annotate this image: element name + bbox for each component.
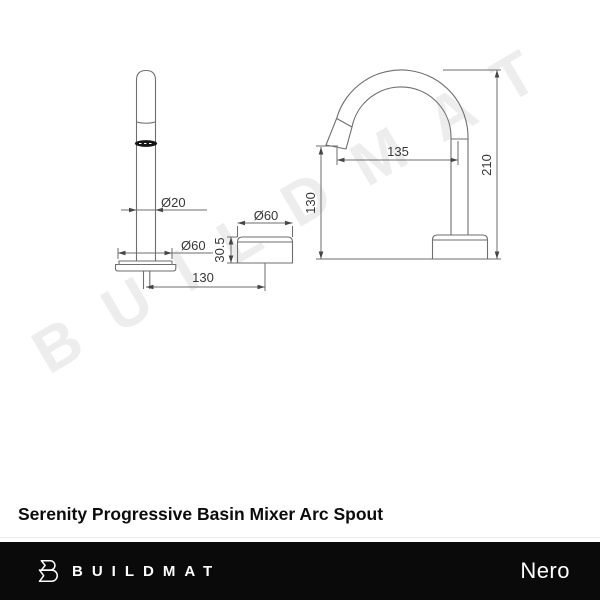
flange-diameter-label: Ø60 xyxy=(181,238,206,253)
dimension-control-height: 30.5 xyxy=(212,237,238,263)
dimension-spout-reach: 135 xyxy=(337,141,458,165)
buildmat-wordmark: BUILDMAT xyxy=(72,563,221,580)
dimension-flange-diameter: Ø60 xyxy=(118,238,213,259)
dimension-outlet-height: 130 xyxy=(303,146,433,259)
control-diameter-label: Ø60 xyxy=(254,208,279,223)
buildmat-logo-icon xyxy=(32,557,62,585)
outlet-height-label: 130 xyxy=(303,192,318,214)
nero-logo: Nero xyxy=(520,558,570,584)
spout-reach-label: 135 xyxy=(387,144,409,159)
dimension-control-diameter: Ø60 xyxy=(238,208,293,237)
side-view-control xyxy=(238,237,293,263)
total-height-label: 210 xyxy=(479,154,494,176)
front-view-spout xyxy=(116,71,176,290)
control-height-label: 30.5 xyxy=(212,237,227,262)
dimension-total-height: 210 xyxy=(443,70,501,259)
side-view-arc-spout xyxy=(326,70,488,259)
technical-drawing: Ø20 Ø60 130 Ø60 30.5 xyxy=(0,0,600,500)
dimension-shaft-diameter: Ø20 xyxy=(121,195,207,212)
shaft-diameter-label: Ø20 xyxy=(161,195,186,210)
footer-divider xyxy=(0,537,600,538)
product-title: Serenity Progressive Basin Mixer Arc Spo… xyxy=(18,504,383,525)
buildmat-brand: BUILDMAT xyxy=(32,557,221,585)
spacing-label: 130 xyxy=(192,270,214,285)
footer-bar: BUILDMAT Nero xyxy=(0,542,600,600)
dimension-centres-spacing: 130 xyxy=(146,263,265,291)
